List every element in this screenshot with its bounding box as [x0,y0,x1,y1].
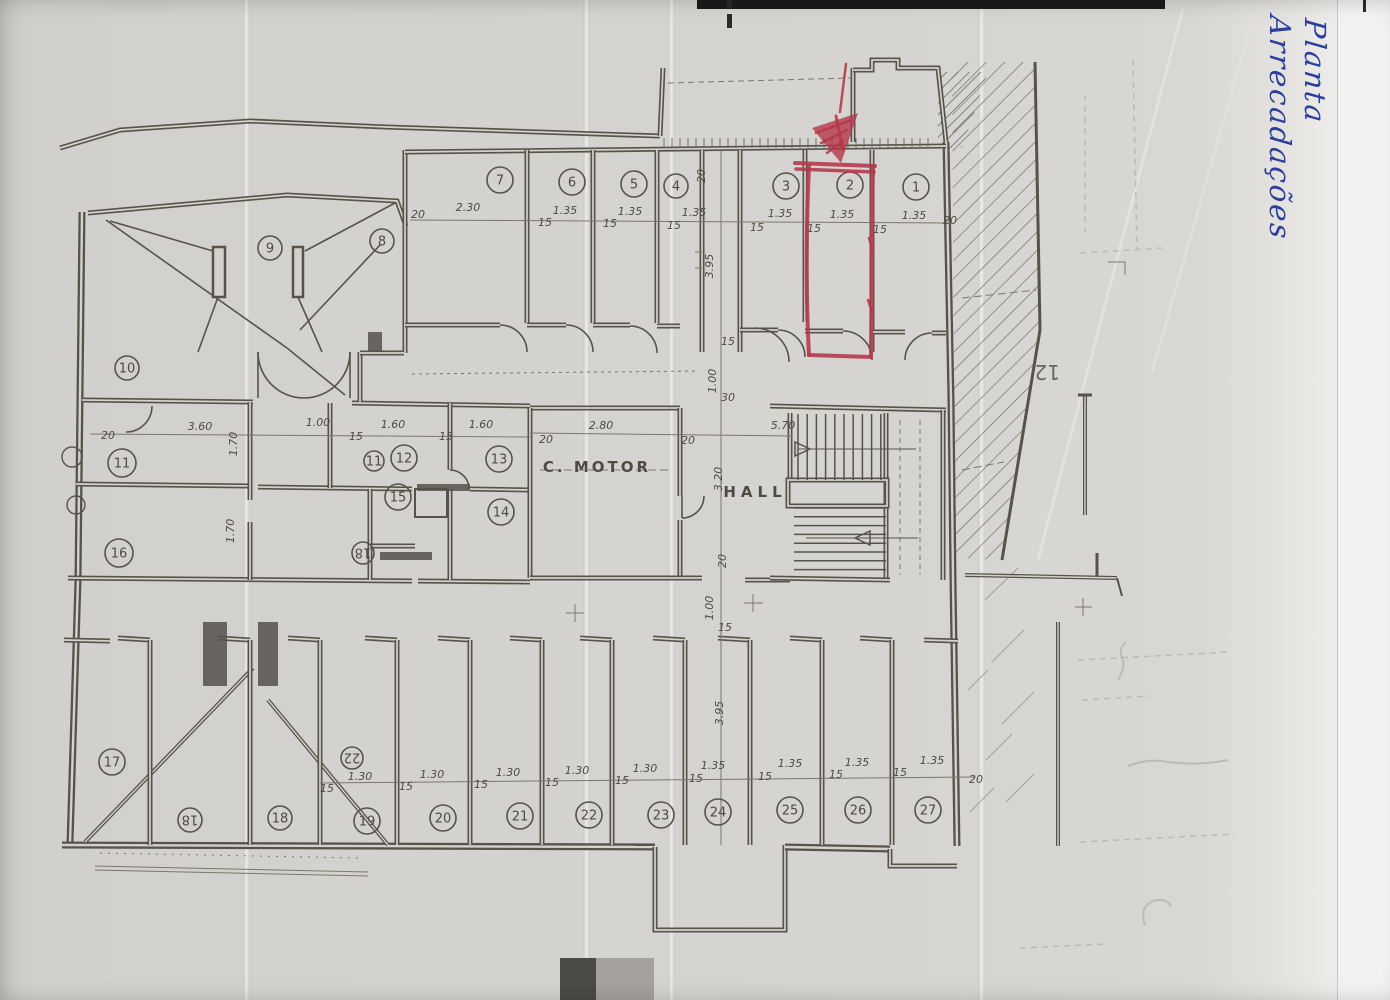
door-arc [287,348,345,395]
red-marker-rectangle [807,166,809,355]
dimension-label: 1.35 [768,207,793,220]
wall-core [788,480,887,506]
dimension-label: 1.30 [565,764,590,777]
unit-number: 6 [568,176,576,191]
dimension-label: 15 [758,770,772,783]
dimension-label: 1.35 [682,206,707,219]
closet-outline [415,489,447,517]
unit-circle-4: 4 [664,174,688,198]
dimension-label: 15 [538,216,552,229]
dimension-label: 1.35 [920,754,945,767]
red-marker-rectangle [871,168,873,356]
unit-number: 21 [512,810,529,825]
dimension-label: 1.30 [420,768,445,781]
dimension-label: 15 [873,223,887,236]
dimension-label: 3.95 [713,701,726,726]
thin-line [412,371,698,374]
unit-number: 22 [344,749,361,764]
dimension-label: 1.30 [633,762,658,775]
dimension-label: 20 [969,773,983,786]
solid-pier [203,622,227,686]
unit-circle-13: 13 [486,446,512,472]
red-marker-rectangle [809,355,871,357]
dimension-label: 2.80 [589,419,614,432]
dimension-label: 1.30 [496,766,521,779]
dimension-label: 1.70 [227,432,240,457]
dimension-label: 20 [411,208,425,221]
unit-number: 20 [435,812,452,827]
unit-number: 17 [104,756,121,771]
dimension-label: 1.35 [902,209,927,222]
dimension-label: 3.95 [703,254,716,279]
dimension-label: 1.35 [618,205,643,218]
unit-number: 22 [581,809,598,824]
unit-number: 4 [672,180,680,195]
unit-circle-19: 19 [354,808,380,834]
unit-number: 18 [182,811,199,826]
door-arc [630,326,657,353]
unit-circle-18: 18 [178,808,202,832]
unit-circle-27: 27 [915,797,941,823]
wall [1117,578,1122,596]
floor-plan-drawing: 12 7654321981011111213151416181722181819… [0,0,1390,1000]
dimension-label: 15 [545,776,559,789]
handwritten-line1: Planta [1297,17,1332,245]
wall [890,849,957,866]
dimension-label: 20 [101,429,115,442]
dimension-label: 20 [716,554,729,568]
unit-circle-7: 7 [487,167,513,193]
unit-circle-20: 20 [430,805,456,831]
unit-number: 10 [119,362,136,377]
unit-circle-8: 8 [370,229,394,253]
dimension-label: 1.35 [778,757,803,770]
dimension-label: 15 [718,621,732,634]
dimension-label: 1.70 [224,519,237,544]
dimension-label: 15 [603,217,617,230]
door-arc [682,496,704,518]
unit-circle-9: 9 [258,236,282,260]
door-arc [126,406,152,432]
unit-circle-18: 18 [268,806,292,830]
unit-circle-23: 23 [648,802,674,828]
unit-circle-26: 26 [845,797,871,823]
wall-core [470,489,530,490]
door-arc [198,297,218,352]
thin-line [100,853,360,858]
unit-number: 1 [912,181,920,196]
wall [788,480,887,506]
unit-number: 3 [782,180,790,195]
dimension-label: 15 [721,335,735,348]
dimension-label: 15 [349,430,363,443]
unit-number: 18 [355,544,372,559]
room-label-c-motor: C. MOTOR [543,458,651,476]
room-label-hall: HALL [723,483,786,501]
dimension-label: 1.60 [469,418,494,431]
dimension-label: 15 [399,780,413,793]
dimension-label: 15 [829,768,843,781]
unit-number: 11 [114,457,131,472]
unit-circle-25: 25 [777,797,803,823]
dimension-label: 15 [807,222,821,235]
door-arc [300,245,380,330]
dimension-label: 1.35 [830,208,855,221]
unit-number: 16 [111,547,128,562]
dimension-label: 20 [695,169,708,183]
red-marker-rectangle [840,64,846,112]
dimension-label: 15 [320,782,334,795]
door-arc [566,325,593,352]
unit-circle-14: 14 [488,499,514,525]
door-arc [304,352,350,398]
door-arc [258,352,304,398]
unit-number: 25 [782,804,799,819]
unit-circle-3: 3 [773,173,799,199]
unit-number: 14 [493,506,510,521]
unit-circle-18: 18 [352,542,374,564]
unit-circle-21: 21 [507,803,533,829]
wall-core [655,845,785,930]
unit-number: 15 [390,491,407,506]
door-arc [110,221,213,251]
dimension-label: 1.35 [553,204,578,217]
thin-line [90,434,530,437]
wall [655,845,785,930]
pier-outline [293,247,303,297]
pier-outline [213,247,225,297]
thin-line [668,78,850,83]
handwritten-line2: Arrecadações [1262,14,1297,242]
dimension-label: 5.70 [771,419,796,432]
unit-number: 13 [491,453,508,468]
dimension-label: 1.00 [306,416,331,429]
unit-circle-1: 1 [903,174,929,200]
dimension-label: 15 [689,772,703,785]
scanned-floor-plan-page: 12 7654321981011111213151416181722181819… [0,0,1390,1000]
unit-circle-11: 11 [364,451,384,471]
stairs [794,414,918,570]
wall-core [924,640,958,641]
unit-number: 27 [920,804,937,819]
dimension-label: 15 [667,219,681,232]
door-arc [755,328,789,362]
dimension-label: 30 [721,391,735,404]
dimension-label: 20 [539,433,553,446]
unit-circle-17: 17 [99,749,125,775]
unit-circle-10: 10 [115,356,139,380]
thin-line [530,433,792,436]
unit-circle-11: 11 [108,449,136,477]
unit-circle-16: 16 [105,539,133,567]
door-arc [905,333,932,360]
solid-pier [380,552,432,560]
dimension-label: 15 [474,778,488,791]
unit-number: 8 [378,235,386,250]
unit-circle-22: 22 [576,802,602,828]
dimension-label: 1.00 [706,369,719,394]
unit-circle-5: 5 [621,171,647,197]
door-arc [500,325,527,352]
unit-number: 5 [630,178,638,193]
dimension-label: 1.30 [348,770,373,783]
plan-solid-fills [203,247,470,686]
handwritten-title: Planta Arrecadações [1262,14,1332,245]
unit-number: 9 [266,242,274,257]
dimension-label: 20 [681,434,695,447]
dimension-label: 1.35 [845,756,870,769]
dimension-label: 15 [615,774,629,787]
door-arc [778,330,805,357]
dimension-label: 1.35 [701,759,726,772]
bleed-through-label: 12 [1035,360,1060,384]
dimension-label: 2.30 [456,201,481,214]
unit-circle-22: 22 [341,747,363,769]
dimension-label: 3.60 [188,420,213,433]
door-arc [298,297,322,352]
unit-number: 7 [496,174,504,189]
unit-number: 18 [272,812,289,827]
door-arc [106,220,287,348]
unit-circle-24: 24 [705,799,731,825]
unit-number: 12 [396,452,413,467]
dimension-label: 1.00 [703,596,716,621]
thin-line [320,777,975,783]
wall [853,60,946,142]
dimension-label: 20 [943,214,957,227]
unit-circle-6: 6 [559,169,585,195]
wall-core [64,640,110,641]
unit-number: 19 [359,815,376,830]
solid-pier [368,332,382,352]
unit-number: 26 [850,804,867,819]
wall-core [890,849,957,866]
dimension-label: 15 [750,221,764,234]
unit-number: 2 [846,179,854,194]
unit-number: 11 [366,455,383,470]
wall-core [418,581,530,582]
solid-pier [258,622,278,686]
dimension-label: 15 [893,766,907,779]
scan-scratches [1038,0,1258,560]
unit-number: 23 [653,809,670,824]
dimension-label: 15 [439,430,453,443]
unit-circle-2: 2 [837,172,863,198]
unit-circle-12: 12 [391,445,417,471]
dimension-label: 1.60 [381,418,406,431]
unit-number: 24 [710,806,727,821]
